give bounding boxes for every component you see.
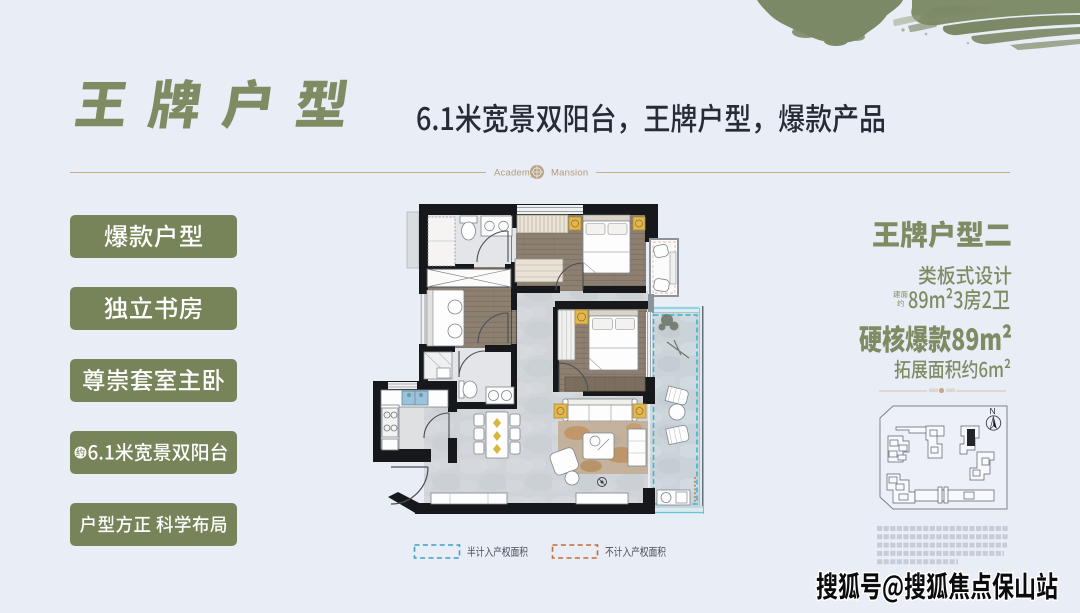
svg-text:N: N: [990, 406, 996, 416]
svg-text:Mansion: Mansion: [551, 168, 588, 179]
svg-text:Academy: Academy: [494, 168, 535, 179]
